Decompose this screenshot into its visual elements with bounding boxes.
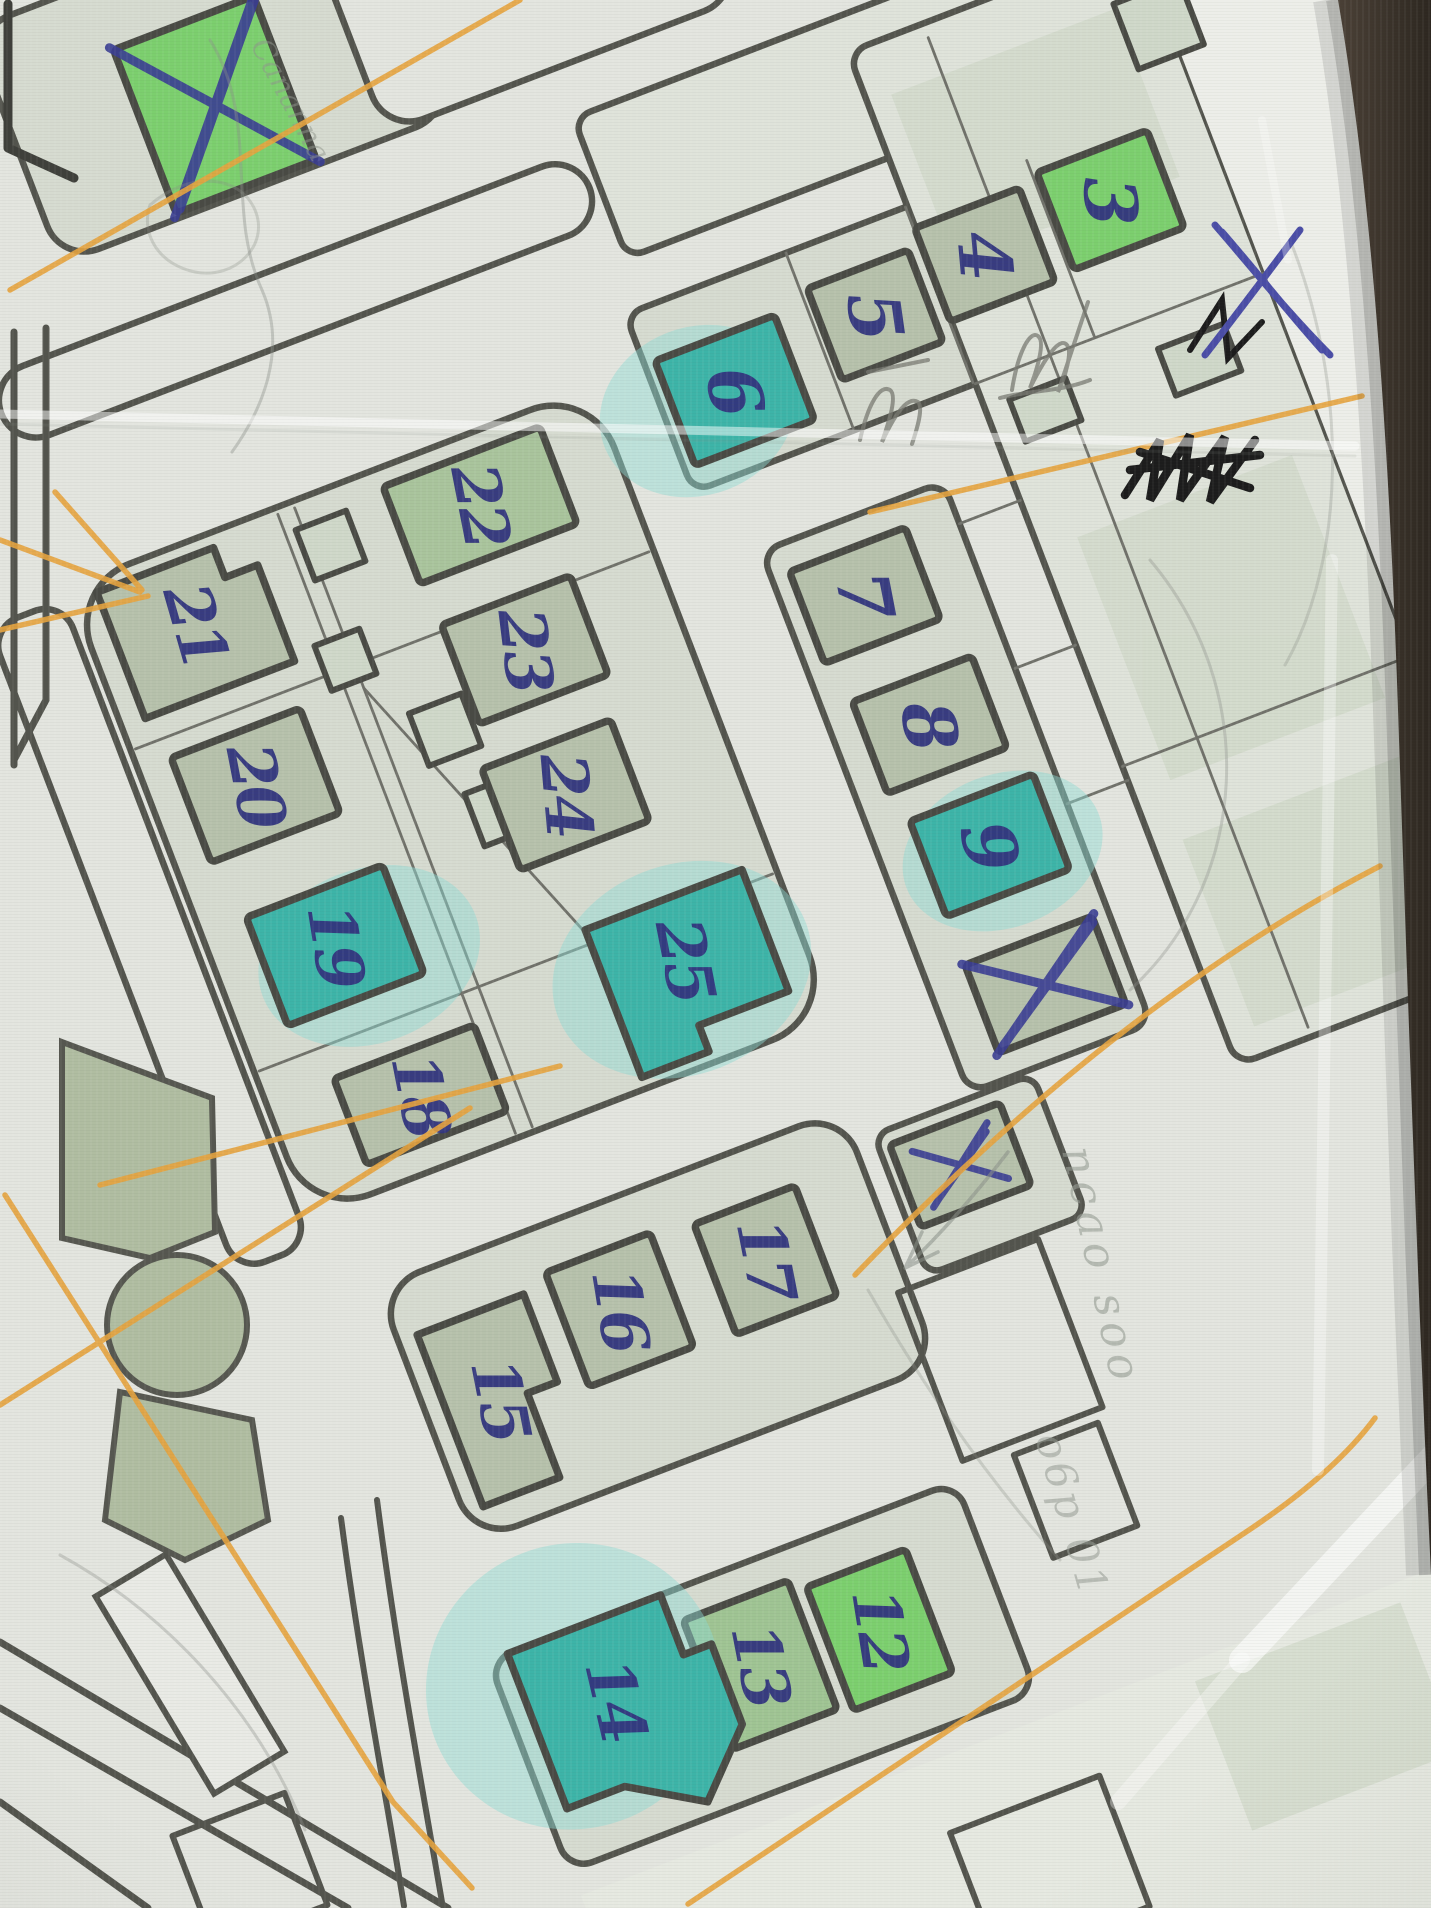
building-number: 17 [721, 1212, 811, 1310]
map-print: 34562221237820249192518171615121314 [0, 0, 1431, 1908]
building-number: 4 [940, 228, 1029, 282]
building-number: 12 [836, 1583, 923, 1677]
building-number: 25 [640, 911, 730, 1008]
photo-of-paper-map: 34562221237820249192518171615121314 Cana… [0, 0, 1431, 1908]
building-number: 22 [435, 456, 525, 553]
map-svg: 34562221237820249192518171615121314 Cana… [0, 0, 1431, 1908]
building-number: 23 [482, 603, 567, 697]
building-number: 15 [455, 1352, 544, 1448]
building-number: 19 [292, 899, 379, 994]
building-number: 16 [576, 1263, 663, 1358]
building-number: 24 [524, 749, 606, 839]
building-number: 3 [1067, 174, 1154, 226]
